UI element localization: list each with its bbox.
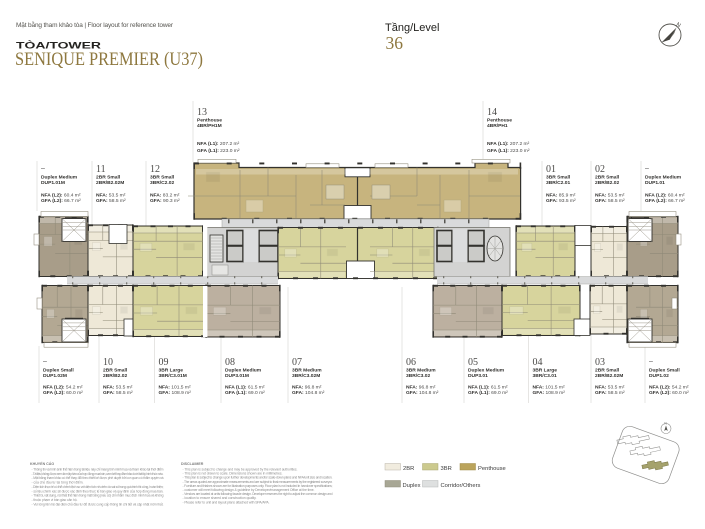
svg-text:2BR Small: 2BR Small xyxy=(595,175,620,181)
svg-text:3BR/C3.02M: 3BR/C3.02M xyxy=(292,373,320,379)
svg-text:3BR Medium: 3BR Medium xyxy=(406,368,436,374)
svg-text:–: – xyxy=(43,359,47,366)
svg-text:04: 04 xyxy=(533,357,543,368)
svg-text:GFA: 58.5 m²: GFA: 58.5 m² xyxy=(595,198,625,204)
svg-text:2BR Small: 2BR Small xyxy=(595,368,620,374)
svg-text:11: 11 xyxy=(96,164,106,175)
svg-text:3BR Large: 3BR Large xyxy=(533,368,558,374)
svg-text:2BR/B2.02M: 2BR/B2.02M xyxy=(595,373,623,379)
svg-text:- Vui lòng liên hệ đại diện c: - Vui lòng liên hệ đại diện chủ đầu tư đ… xyxy=(32,502,164,506)
svg-text:GFA: 104.8 m²: GFA: 104.8 m² xyxy=(406,390,439,396)
svg-text:GFA: 58.5 m²: GFA: 58.5 m² xyxy=(96,198,126,204)
svg-text:02: 02 xyxy=(595,164,605,175)
svg-text:NFA (L1): 61.5 m²: NFA (L1): 61.5 m² xyxy=(225,385,265,391)
svg-text:GFA: 58.5 m²: GFA: 58.5 m² xyxy=(103,390,133,396)
svg-text:NFA (L1): 207.2 m²: NFA (L1): 207.2 m² xyxy=(487,141,530,147)
svg-text:Penthouse: Penthouse xyxy=(478,466,506,472)
svg-text:GFA (L2): 60.0 m²: GFA (L2): 60.0 m² xyxy=(43,390,83,396)
svg-text:- Please refer to unit and la: - Please refer to unit and layout plans … xyxy=(183,500,270,504)
svg-text:2BR/B2.02M: 2BR/B2.02M xyxy=(96,180,124,186)
svg-text:GFA (L1): 69.0 m²: GFA (L1): 69.0 m² xyxy=(468,390,508,396)
svg-text:2BR Small: 2BR Small xyxy=(96,175,121,181)
svg-text:2BR: 2BR xyxy=(403,466,414,472)
svg-text:NFA: 85.9 m²: NFA: 85.9 m² xyxy=(546,192,576,198)
svg-text:Duplex: Duplex xyxy=(403,483,421,489)
svg-text:3BR Large: 3BR Large xyxy=(159,368,184,374)
svg-text:13: 13 xyxy=(197,107,207,118)
svg-text:DISCLAIMER: DISCLAIMER xyxy=(181,462,204,466)
svg-text:–: – xyxy=(645,166,649,173)
svg-text:–: – xyxy=(649,359,653,366)
svg-text:NFA: 53.5 m²: NFA: 53.5 m² xyxy=(595,385,625,391)
svg-text:GFA: 58.5 m²: GFA: 58.5 m² xyxy=(595,390,625,396)
svg-text:DUP3.01M: DUP3.01M xyxy=(225,373,249,379)
svg-text:- Thông tin và hình ảnh thể h: - Thông tin và hình ảnh thể hiện trong t… xyxy=(32,468,164,472)
svg-text:10: 10 xyxy=(103,357,113,368)
svg-text:03: 03 xyxy=(595,357,605,368)
svg-text:3BR Small: 3BR Small xyxy=(546,175,571,181)
svg-text:3BR: 3BR xyxy=(441,466,452,472)
svg-text:GFA (L2): 66.7 m²: GFA (L2): 66.7 m² xyxy=(645,198,685,204)
svg-text:GFA (L2): 66.7 m²: GFA (L2): 66.7 m² xyxy=(41,198,81,204)
svg-text:3BR Small: 3BR Small xyxy=(150,175,175,181)
svg-text:DUP1.02M: DUP1.02M xyxy=(43,373,67,379)
svg-text:GFA: 108.9 m²: GFA: 108.9 m² xyxy=(533,390,566,396)
svg-text:Duplex Small: Duplex Small xyxy=(649,368,680,374)
svg-text:NFA: 53.5 m²: NFA: 53.5 m² xyxy=(595,192,625,198)
svg-text:DUP1.02: DUP1.02 xyxy=(649,373,669,379)
svg-text:NFA (L2): 60.4 m²: NFA (L2): 60.4 m² xyxy=(41,192,81,198)
svg-text:GFA (L1): 223.0 m²: GFA (L1): 223.0 m² xyxy=(487,148,530,154)
svg-text:Corridor/Others: Corridor/Others xyxy=(441,483,481,489)
svg-text:Mặt bằng tham khảo tòa | Floor: Mặt bằng tham khảo tòa | Floor layout fo… xyxy=(16,20,174,29)
svg-text:- Diện tích thực tế có thể ch: - Diện tích thực tế có thể chênh lệch so… xyxy=(32,485,164,489)
svg-text:4BR/PH1: 4BR/PH1 xyxy=(487,123,508,129)
svg-text:DUP1.01M: DUP1.01M xyxy=(41,180,65,186)
svg-text:4BR/PH1M: 4BR/PH1M xyxy=(197,123,222,129)
svg-text:NFA (L2): 60.4 m²: NFA (L2): 60.4 m² xyxy=(645,192,685,198)
svg-text:2BR/B2.02: 2BR/B2.02 xyxy=(595,180,619,186)
svg-text:NFA: 101.5 m²: NFA: 101.5 m² xyxy=(159,385,191,391)
svg-text:2BR Small: 2BR Small xyxy=(103,368,128,374)
svg-text:GFA: 108.9 m²: GFA: 108.9 m² xyxy=(159,390,192,396)
svg-text:Duplex Medium: Duplex Medium xyxy=(225,368,262,374)
svg-text:12: 12 xyxy=(150,164,160,175)
svg-text:3BR/C2.02: 3BR/C2.02 xyxy=(150,180,174,186)
svg-text:DUP1.01: DUP1.01 xyxy=(645,180,665,186)
svg-text:36: 36 xyxy=(386,33,404,53)
svg-text:GFA: 90.3 m²: GFA: 90.3 m² xyxy=(150,198,180,204)
svg-text:3BR/C3.01M: 3BR/C3.01M xyxy=(159,373,187,379)
svg-text:Duplex Small: Duplex Small xyxy=(43,368,74,374)
svg-text:08: 08 xyxy=(225,357,235,368)
svg-text:- Mặt bằng tham khảo có thể t: - Mặt bằng tham khảo có thể thay đổi the… xyxy=(32,475,164,480)
svg-text:05: 05 xyxy=(468,357,478,368)
svg-text:GFA (L2): 60.0 m²: GFA (L2): 60.0 m² xyxy=(649,390,689,396)
svg-text:GFA (L1): 223.0 m²: GFA (L1): 223.0 m² xyxy=(197,148,240,154)
svg-text:NFA (L1): 207.2 m²: NFA (L1): 207.2 m² xyxy=(197,141,240,147)
svg-text:06: 06 xyxy=(406,357,416,368)
svg-text:2BR/B2.02: 2BR/B2.02 xyxy=(103,373,127,379)
svg-text:KHUYẾN CÁO: KHUYẾN CÁO xyxy=(30,461,54,466)
svg-text:NFA: 101.5 m²: NFA: 101.5 m² xyxy=(533,385,565,391)
svg-text:NFA: 96.8 m²: NFA: 96.8 m² xyxy=(406,385,436,391)
svg-text:NFA: 96.8 m²: NFA: 96.8 m² xyxy=(292,385,322,391)
svg-text:NFA: 53.5 m²: NFA: 53.5 m² xyxy=(103,385,133,391)
svg-text:Duplex Medium: Duplex Medium xyxy=(645,175,682,181)
svg-text:Duplex Medium: Duplex Medium xyxy=(468,368,505,374)
svg-text:3BR/C2.01: 3BR/C2.01 xyxy=(546,180,570,186)
svg-text:14: 14 xyxy=(487,107,497,118)
svg-text:3BR/C3.02: 3BR/C3.02 xyxy=(406,373,430,379)
svg-text:Penthouse: Penthouse xyxy=(197,118,222,124)
svg-text:GFA: 104.8 m²: GFA: 104.8 m² xyxy=(292,390,325,396)
svg-text:09: 09 xyxy=(159,357,169,368)
svg-text:–: – xyxy=(41,166,45,173)
svg-text:Duplex Medium: Duplex Medium xyxy=(41,175,78,181)
svg-text:NFA (L2): 54.2 m²: NFA (L2): 54.2 m² xyxy=(43,385,83,391)
svg-text:SENIQUE PREMIER (U37): SENIQUE PREMIER (U37) xyxy=(15,50,203,70)
svg-text:GFA (L1): 69.0 m²: GFA (L1): 69.0 m² xyxy=(225,390,265,396)
svg-text:NFA (L2): 54.2 m²: NFA (L2): 54.2 m² xyxy=(649,385,689,391)
svg-text:GFA: 93.5 m²: GFA: 93.5 m² xyxy=(546,198,576,204)
svg-text:Penthouse: Penthouse xyxy=(487,118,512,124)
svg-text:NFA (L1): 61.5 m²: NFA (L1): 61.5 m² xyxy=(468,385,508,391)
svg-text:- Thiết bị, vật dụng, nội thấ: - Thiết bị, vật dụng, nội thất thể hiện … xyxy=(32,493,164,498)
svg-text:DUP3.01: DUP3.01 xyxy=(468,373,488,379)
svg-text:3BR/C3.01: 3BR/C3.01 xyxy=(533,373,557,379)
svg-text:01: 01 xyxy=(546,164,556,175)
svg-text:NFA: 83.2 m²: NFA: 83.2 m² xyxy=(150,192,180,198)
svg-text:07: 07 xyxy=(292,357,302,368)
svg-text:NFA: 53.5 m²: NFA: 53.5 m² xyxy=(96,192,126,198)
svg-text:3BR Medium: 3BR Medium xyxy=(292,368,322,374)
